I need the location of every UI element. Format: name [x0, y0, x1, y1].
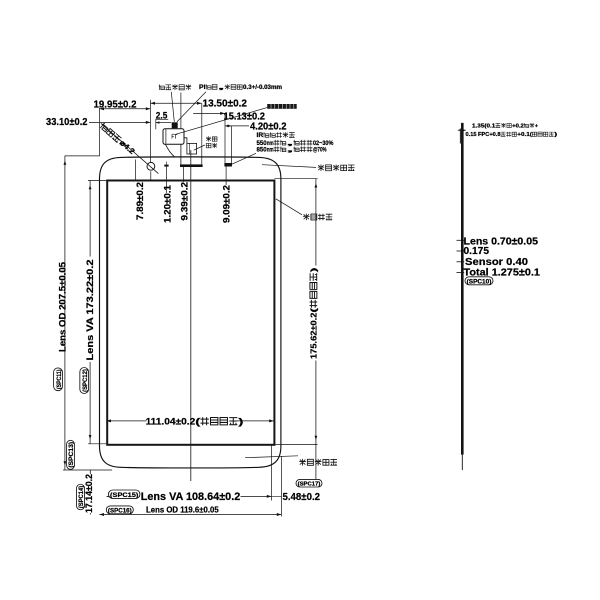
svg-text:1.35(0.1: 1.35(0.1 — [472, 123, 495, 129]
svg-text:9.09±0.2: 9.09±0.2 — [222, 185, 232, 223]
svg-text:): ) — [309, 267, 319, 272]
svg-text:1.20±0.1: 1.20±0.1 — [163, 185, 173, 223]
svg-text:+: + — [535, 123, 538, 129]
svg-text:(SPC16): (SPC16) — [108, 508, 132, 514]
svg-text:Lens VA 108.64±0.2: Lens VA 108.64±0.2 — [141, 491, 241, 503]
svg-text:0.3+/-0.03mm: 0.3+/-0.03mm — [243, 85, 282, 91]
svg-text:4.20±0.2: 4.20±0.2 — [250, 122, 287, 133]
svg-text:0.15 FPC+0.8: 0.15 FPC+0.8 — [466, 132, 501, 138]
svg-text:7.89±0.2: 7.89±0.2 — [135, 182, 145, 220]
svg-text:Lens OD 119.6±0.05: Lens OD 119.6±0.05 — [146, 505, 219, 515]
svg-text:): ) — [238, 417, 243, 427]
svg-text:111.04±0.2: 111.04±0.2 — [146, 417, 196, 427]
svg-text:175.62±0.2: 175.62±0.2 — [309, 312, 319, 359]
svg-text:(SPC15): (SPC15) — [110, 492, 138, 499]
svg-text:Lens VA 173.22±0.2: Lens VA 173.22±0.2 — [85, 260, 95, 361]
svg-text:2.5: 2.5 — [156, 110, 168, 121]
svg-text:(: ( — [309, 308, 319, 313]
svg-text:nm: nm — [267, 147, 274, 154]
svg-text:0.175: 0.175 — [464, 246, 490, 257]
svg-text:PI: PI — [199, 85, 206, 91]
svg-text:Sensor 0.40: Sensor 0.40 — [465, 257, 529, 268]
svg-text:(SPC17): (SPC17) — [298, 482, 321, 488]
svg-text:17.14±0.2: 17.14±0.2 — [84, 474, 94, 513]
svg-text:(SPC10): (SPC10) — [467, 279, 492, 285]
svg-text:Lens OD 207.5±0.05: Lens OD 207.5±0.05 — [57, 262, 67, 352]
svg-text:): ) — [554, 132, 557, 138]
svg-text:+0.2: +0.2 — [512, 123, 524, 129]
svg-text:13.50±0.2: 13.50±0.2 — [203, 99, 248, 110]
svg-text:(SPC12): (SPC12) — [82, 369, 89, 392]
svg-text:(SPC14): (SPC14) — [78, 486, 85, 508]
svg-text:+0.1(: +0.1( — [517, 132, 532, 138]
svg-text:19.95±0.2: 19.95±0.2 — [94, 100, 137, 111]
svg-text:(SPC13): (SPC13) — [68, 442, 75, 468]
svg-text:,: , — [287, 147, 295, 154]
svg-text:850: 850 — [257, 147, 268, 154]
svg-text:(SPC11): (SPC11) — [56, 370, 63, 390]
svg-text:IR: IR — [257, 132, 264, 139]
svg-text:33.10±0.2: 33.10±0.2 — [46, 117, 88, 128]
svg-text:9.39±0.2: 9.39±0.2 — [180, 182, 190, 221]
svg-text:5.48±0.2: 5.48±0.2 — [283, 492, 321, 503]
svg-text:@70%: @70% — [313, 147, 327, 154]
